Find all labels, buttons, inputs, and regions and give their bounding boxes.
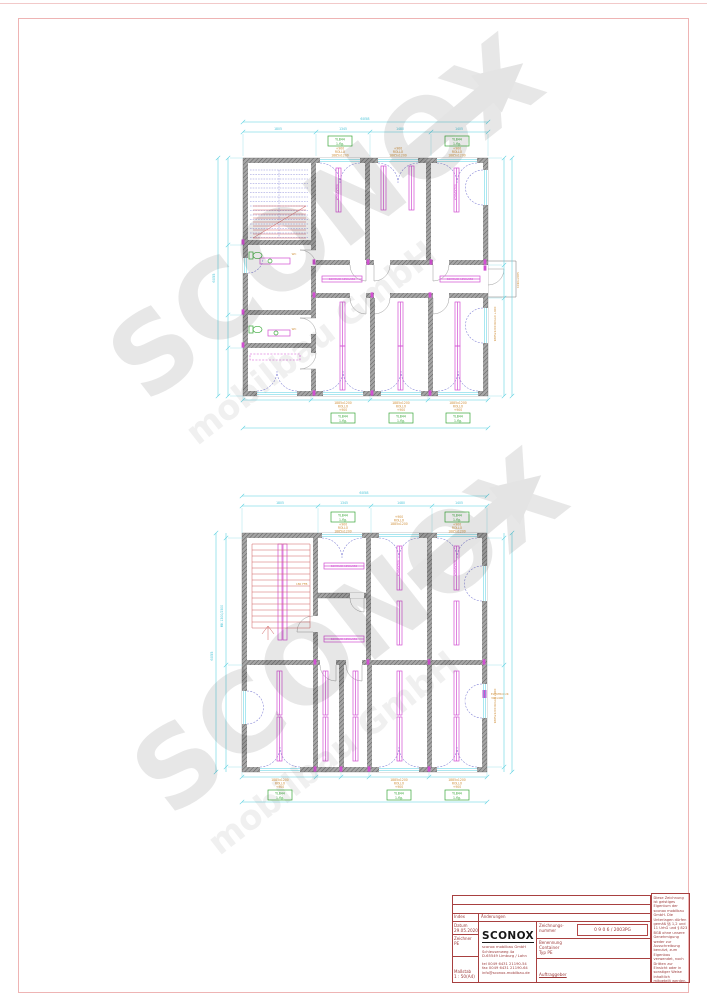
radiator-label: KONVEKTOR <box>397 560 401 576</box>
dim-total-height: 6055 <box>210 651 214 660</box>
svg-text:+900: +900 <box>395 785 404 789</box>
window-spec: +900 ROLLO 1885x1200 <box>334 523 352 534</box>
shelf-label: SCHRANK 1950x550 <box>331 637 358 641</box>
zeichner-value: PE <box>454 941 478 946</box>
window-tag: YLB44 1-flg. <box>445 512 469 522</box>
dim-seg: 1405 <box>455 127 463 131</box>
svg-text:1-flg.: 1-flg. <box>336 142 344 146</box>
wc-label: WC <box>292 252 297 256</box>
drawing-sheet: 1010x2065 SCHRANK 1950x550 SCHRANK 1950x… <box>0 0 707 1000</box>
auftraggeber-cell: Auftraggeber <box>537 959 650 982</box>
svg-text:1-flg.: 1-flg. <box>397 419 405 423</box>
window-spec: +900 ROLLO 1885x1200 <box>331 147 349 158</box>
window-tag: YLB44 1-flg. <box>268 790 292 800</box>
window-tag: YLB44 1-flg. <box>446 413 470 423</box>
svg-text:1885x1200: 1885x1200 <box>448 529 466 533</box>
dim-seg: 1345 <box>340 501 348 505</box>
svg-text:1885x1200: 1885x1200 <box>389 153 407 157</box>
auftraggeber-label: Auftraggeber <box>539 972 567 977</box>
entrance-door-spec: 1010x2065 <box>516 272 520 288</box>
benennung-line: Typ PE <box>539 950 650 955</box>
window-tag: YLB44 1-flg. <box>331 413 355 423</box>
dim-total-width: 6058 <box>359 491 369 495</box>
svg-text:+900: +900 <box>454 408 463 412</box>
svg-text:1-flg.: 1-flg. <box>453 796 461 800</box>
svg-text:1-flg.: 1-flg. <box>339 518 347 522</box>
title-block: Index Änderungen Datum 29.05.2020 Zeichn… <box>452 895 651 983</box>
massstab-cell: Maßstab 1 : 50(A4) <box>453 957 479 982</box>
side-window-spec: 1885x1200 ROLLO +900 <box>493 306 497 341</box>
svg-text:1-flg.: 1-flg. <box>454 419 462 423</box>
window-spec: 1885x1200 ROLLO +900 <box>334 401 352 412</box>
page-top-line <box>0 3 707 4</box>
window-spec: 1885x1200 ROLLO +900 <box>392 401 410 412</box>
window-tag: YLB44 1-flg. <box>331 512 355 522</box>
wc-label: WC <box>292 327 297 331</box>
dim-total-width: 6058 <box>360 117 370 121</box>
window-spec: 1885x1200 ROLLO +900 <box>271 778 289 789</box>
company-cell: SCONOX sconox mobilbau GmbH Schleusenweg… <box>479 922 537 982</box>
benennung-cell: Benennung Container Typ PE <box>537 939 650 959</box>
svg-text:+900: +900 <box>339 408 348 412</box>
svg-text:1-flg.: 1-flg. <box>453 518 461 522</box>
dim-seg: 1805 <box>276 501 284 505</box>
dim-seg: 1345 <box>339 127 347 131</box>
dim-total-height: 6055 <box>212 273 216 282</box>
company-email: info@sconox-mobilbau.de <box>482 971 536 976</box>
dim-seg: 1480 <box>396 127 404 131</box>
radiator-label: KONVEKTOR <box>336 184 340 200</box>
zeichner-cell: Zeichner PE <box>453 935 479 957</box>
floor-plan-lower: SCHRANK 1950x550 SCHRANK 1950x550 KONVEK… <box>198 466 534 806</box>
side-window-spec: 1885x1200 ROLLO +900 <box>493 688 497 723</box>
copyright-box: Diese Zeichnung ist geistiges Eigentum d… <box>651 893 690 983</box>
svg-text:1885x1200: 1885x1200 <box>390 522 408 526</box>
svg-text:1885x1200: 1885x1200 <box>448 153 466 157</box>
window-spec: +900 ROLLO 1885x1200 <box>389 147 407 158</box>
svg-text:1-flg.: 1-flg. <box>453 142 461 146</box>
datum-value: 29.05.2020 <box>454 928 478 933</box>
company-logo: SCONOX <box>482 931 534 943</box>
stair-note: 180 FFB <box>296 582 307 586</box>
window-spec: 1885x1200 ROLLO +900 <box>390 778 408 789</box>
company-city: D-65549 Limburg / Lahn <box>482 954 536 959</box>
dim-seg: 1405 <box>455 501 463 505</box>
revision-row <box>453 905 650 914</box>
window-tag: YLB44 1-flg. <box>445 790 469 800</box>
shelf-label: SCHRANK 1950x550 <box>329 277 356 281</box>
svg-text:1-flg.: 1-flg. <box>276 796 284 800</box>
drawingno-cell: Zeichnungs- nummer 0 9 0 6 / 2003PG <box>537 922 650 939</box>
svg-text:1885x1200: 1885x1200 <box>331 153 349 157</box>
radiator-label: KONVEKTOR <box>454 184 458 200</box>
svg-text:+900: +900 <box>397 408 406 412</box>
revision-row <box>453 896 650 905</box>
radiator-label: KONVEKTOR <box>454 560 458 576</box>
shelf-label: SCHRANK 1950x550 <box>331 564 358 568</box>
shelf-label: SCHRANK 1950x550 <box>447 277 474 281</box>
datum-cell: Datum 29.05.2020 <box>453 922 479 935</box>
window-tag: YLB44 1-flg. <box>328 136 352 146</box>
window-tag: YLB44 1-flg. <box>389 413 413 423</box>
svg-text:+900: +900 <box>276 785 285 789</box>
index-value: Änderungen <box>479 914 650 922</box>
window-tag: YLB44 1-flg. <box>387 790 411 800</box>
window-spec: +900 ROLLO 1885x1200 <box>448 147 466 158</box>
drawingno-value: 0 9 0 6 / 2003PG <box>577 924 648 936</box>
window-tag: YLB44 1-flg. <box>445 136 469 146</box>
dim-seg: 1480 <box>397 501 405 505</box>
index-label: Index <box>453 914 479 922</box>
module-note: MK 1300/2500 <box>220 605 224 628</box>
window-spec: +900 ROLLO 1885x1200 <box>448 523 466 534</box>
window-spec: +900 ROLLO 1885x1200 <box>390 515 408 526</box>
svg-text:1-flg.: 1-flg. <box>395 796 403 800</box>
window-spec: 1885x1200 ROLLO +900 <box>449 401 467 412</box>
dim-seg: 1805 <box>274 127 282 131</box>
svg-text:1885x1200: 1885x1200 <box>334 529 352 533</box>
floor-plan-upper: 1010x2065 SCHRANK 1950x550 SCHRANK 1950x… <box>198 108 534 438</box>
svg-text:1-flg.: 1-flg. <box>339 419 347 423</box>
window-spec: 1885x1200 ROLLO +900 <box>448 778 466 789</box>
svg-text:+900: +900 <box>453 785 462 789</box>
massstab-value: 1 : 50(A4) <box>454 974 478 979</box>
